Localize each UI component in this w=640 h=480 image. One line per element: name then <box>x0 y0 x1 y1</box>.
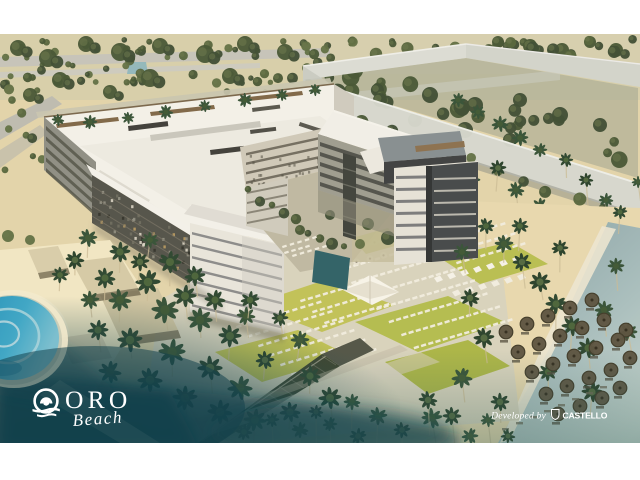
svg-text:CASTELLO: CASTELLO <box>563 410 608 420</box>
svg-text:Developed by: Developed by <box>490 411 546 422</box>
svg-text:Beach: Beach <box>72 408 124 430</box>
